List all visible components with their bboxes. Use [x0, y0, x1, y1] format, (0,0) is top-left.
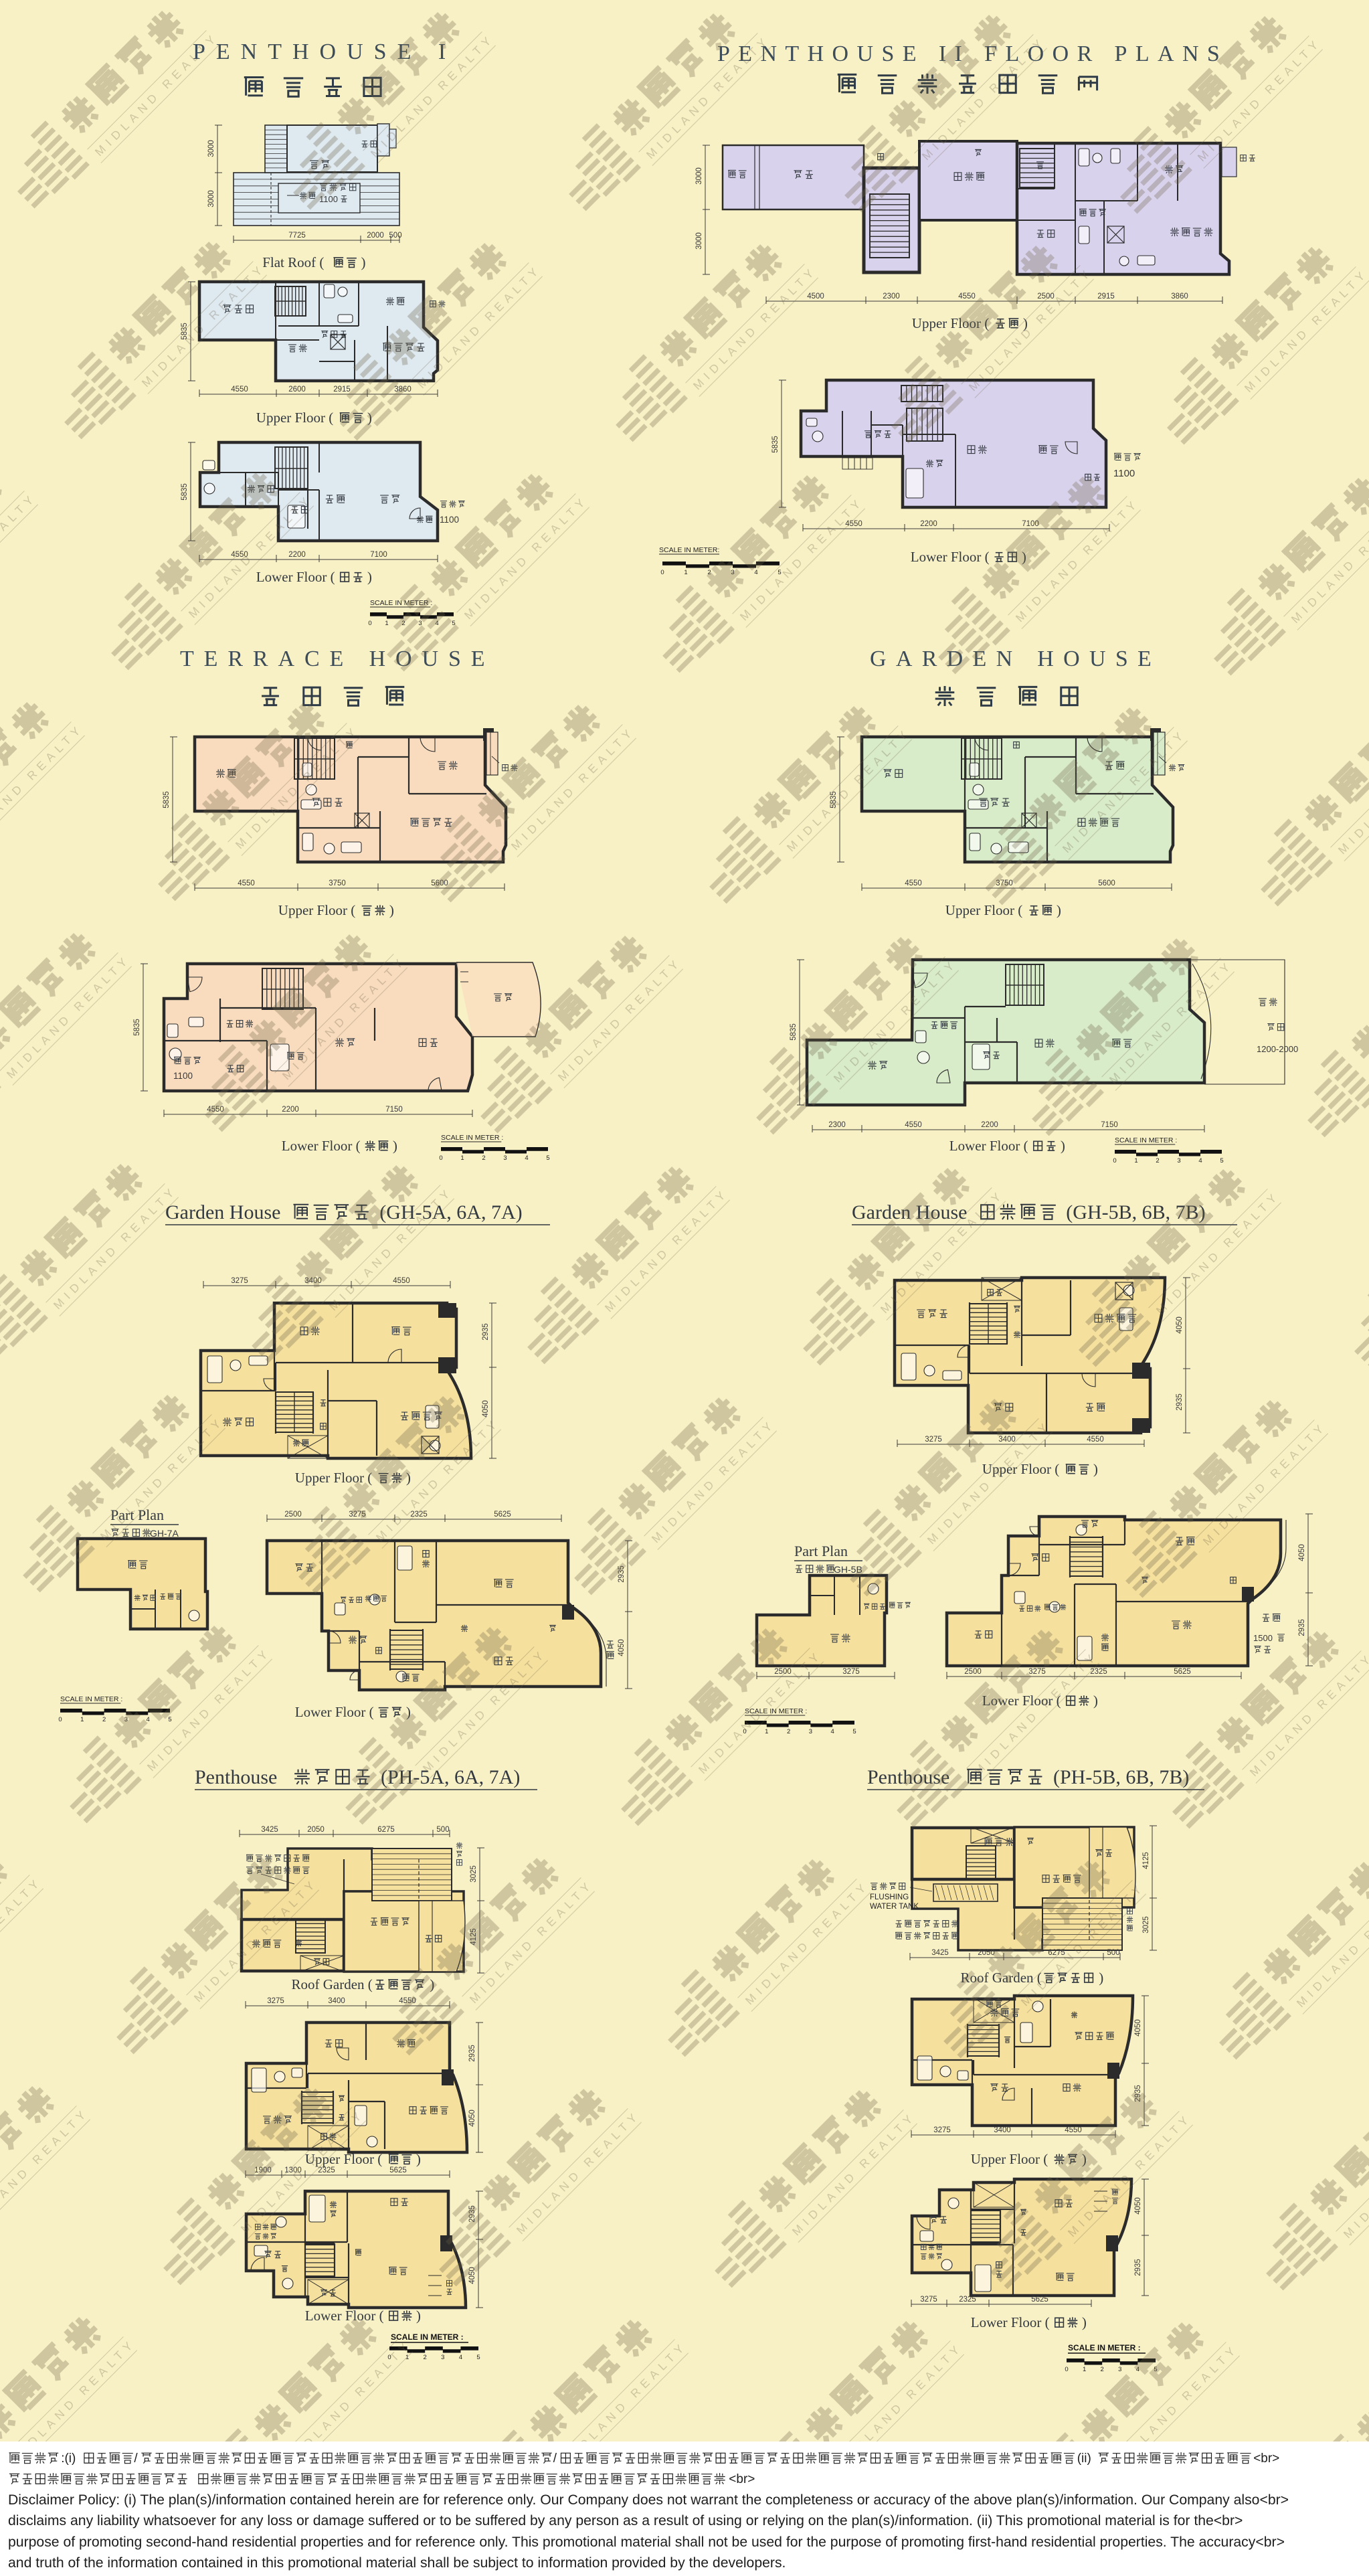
svg-text:1100: 1100	[173, 1071, 193, 1081]
svg-text::(i): :(i)	[61, 2452, 76, 2466]
svg-text:3000: 3000	[695, 232, 703, 250]
svg-text:4550: 4550	[1087, 1436, 1104, 1444]
svg-text:3275: 3275	[231, 1277, 248, 1285]
svg-text:0: 0	[439, 1154, 442, 1162]
svg-text:4: 4	[1198, 1157, 1202, 1165]
svg-text:2: 2	[424, 2354, 427, 2361]
svg-text:5: 5	[852, 1728, 856, 1735]
svg-text:5: 5	[1220, 1157, 1223, 1165]
svg-text:): )	[416, 2151, 421, 2167]
svg-text:Lower Floor (: Lower Floor (	[295, 1704, 374, 1720]
svg-text:2200: 2200	[282, 1106, 299, 1114]
svg-text:2200: 2200	[981, 1121, 998, 1129]
svg-text:2915: 2915	[333, 385, 351, 394]
svg-text:2: 2	[787, 1728, 790, 1735]
svg-text:<br>: <br>	[1253, 2452, 1279, 2466]
svg-text:5: 5	[168, 1716, 171, 1723]
svg-text:4125: 4125	[1142, 1852, 1150, 1869]
svg-text:4: 4	[831, 1728, 834, 1735]
svg-text:purpose of promoting second-ha: purpose of promoting second-hand residen…	[8, 2535, 1285, 2550]
svg-text:TERRACE HOUSE: TERRACE HOUSE	[180, 647, 494, 671]
svg-text:2935: 2935	[1176, 1393, 1184, 1411]
svg-text:SCALE IN METER:: SCALE IN METER:	[659, 546, 719, 554]
svg-text:5835: 5835	[771, 436, 780, 453]
svg-text:2000: 2000	[367, 232, 384, 240]
svg-text:4050: 4050	[1134, 2019, 1142, 2037]
svg-text:Upper Floor (: Upper Floor (	[278, 902, 355, 918]
svg-text:4: 4	[754, 569, 757, 576]
svg-text:4: 4	[459, 2354, 462, 2361]
svg-text:2200: 2200	[920, 520, 937, 528]
svg-text:1: 1	[405, 2354, 409, 2361]
svg-text:7150: 7150	[1101, 1121, 1118, 1129]
svg-text:Lower Floor (: Lower Floor (	[971, 2314, 1050, 2330]
svg-text:Upper Floor (: Upper Floor (	[971, 2151, 1048, 2167]
svg-text:0: 0	[660, 569, 664, 576]
svg-text:4050: 4050	[1298, 1544, 1306, 1561]
svg-text:2500: 2500	[964, 1668, 982, 1676]
svg-text:): )	[1093, 1693, 1098, 1709]
svg-text:1100: 1100	[1113, 468, 1135, 479]
svg-text:Lower Floor (: Lower Floor (	[949, 1138, 1028, 1154]
svg-text:4050: 4050	[1134, 2197, 1142, 2215]
svg-text:3: 3	[1177, 1157, 1180, 1165]
svg-text:and truth of the information c: and truth of the information contained i…	[8, 2555, 786, 2571]
svg-text:3275: 3275	[842, 1668, 860, 1676]
svg-text:3025: 3025	[1142, 1916, 1150, 1934]
svg-text:SCALE IN METER :: SCALE IN METER :	[60, 1695, 122, 1703]
svg-text:2300: 2300	[883, 292, 900, 300]
svg-text:3750: 3750	[329, 879, 346, 887]
svg-text:0: 0	[1065, 2366, 1068, 2373]
svg-text:2935: 2935	[468, 2045, 476, 2062]
svg-text:2: 2	[1156, 1157, 1159, 1165]
svg-text:): )	[1093, 1461, 1098, 1477]
svg-text:3400: 3400	[328, 1997, 345, 2005]
svg-text:5835: 5835	[133, 1019, 141, 1036]
svg-text:1: 1	[460, 1154, 464, 1162]
svg-text:/: /	[134, 2452, 138, 2466]
svg-text:2325: 2325	[959, 2296, 976, 2304]
svg-text:1: 1	[765, 1728, 768, 1735]
svg-text:): )	[367, 569, 372, 585]
svg-text:5835: 5835	[181, 483, 189, 501]
svg-text:Lower Floor (: Lower Floor (	[256, 569, 335, 585]
svg-text:5835: 5835	[790, 1023, 798, 1041]
svg-text:2: 2	[102, 1716, 106, 1723]
svg-text:SCALE IN METER :: SCALE IN METER :	[1115, 1136, 1177, 1144]
svg-text:7150: 7150	[385, 1106, 403, 1114]
svg-text:GARDEN HOUSE: GARDEN HOUSE	[870, 647, 1161, 671]
svg-text:4550: 4550	[905, 879, 922, 887]
svg-text:0: 0	[58, 1716, 62, 1723]
svg-text:7100: 7100	[370, 551, 387, 559]
svg-text:Disclaimer Policy: (i) The pla: Disclaimer Policy: (i) The plan(s)/infor…	[8, 2492, 1289, 2508]
svg-text:2050: 2050	[307, 1826, 325, 1834]
svg-text:3000: 3000	[207, 190, 215, 207]
svg-text:5: 5	[546, 1154, 549, 1162]
svg-text:2300: 2300	[828, 1121, 846, 1129]
svg-text:FLUSHING: FLUSHING	[870, 1893, 909, 1901]
svg-text:2: 2	[482, 1154, 485, 1162]
svg-text:4550: 4550	[958, 292, 976, 300]
svg-text:): )	[1099, 1970, 1103, 1986]
svg-text:GH-7A: GH-7A	[150, 1528, 179, 1539]
svg-text:1100: 1100	[440, 515, 459, 525]
svg-text:4550: 4550	[1065, 2126, 1082, 2134]
svg-text:4050: 4050	[468, 2110, 476, 2127]
svg-text:(ii): (ii)	[1077, 2452, 1091, 2466]
svg-text:Upper Floor (: Upper Floor (	[295, 1470, 372, 1486]
svg-text:/: /	[553, 2452, 557, 2466]
svg-text:3: 3	[503, 1154, 507, 1162]
svg-text:5835: 5835	[163, 791, 171, 808]
svg-text:WATER TANK: WATER TANK	[870, 1903, 919, 1911]
svg-text:500: 500	[389, 232, 401, 240]
svg-text:0: 0	[1113, 1157, 1116, 1165]
svg-text:2915: 2915	[1097, 292, 1115, 300]
svg-text:4550: 4550	[238, 879, 255, 887]
svg-text:<br>: <br>	[729, 2472, 755, 2486]
svg-text:Lower Floor (: Lower Floor (	[911, 549, 990, 565]
svg-text:): )	[393, 1138, 397, 1154]
svg-text:3000: 3000	[695, 167, 703, 185]
svg-text:4550: 4550	[905, 1121, 922, 1129]
svg-text:2325: 2325	[318, 2166, 335, 2174]
svg-text:500: 500	[1107, 1949, 1119, 1957]
svg-text:4050: 4050	[618, 1639, 626, 1656]
svg-text:5625: 5625	[494, 1511, 511, 1519]
svg-text:3: 3	[1118, 2366, 1121, 2373]
svg-text:3860: 3860	[1171, 292, 1188, 300]
svg-text:4550: 4550	[393, 1277, 410, 1285]
svg-text:2050: 2050	[978, 1949, 995, 1957]
svg-text:Upper Floor (: Upper Floor (	[945, 902, 1022, 918]
svg-text:3025: 3025	[470, 1865, 478, 1883]
svg-text:(PH-5B, 6B, 7B): (PH-5B, 6B, 7B)	[1053, 1766, 1189, 1788]
svg-text:SCALE IN METER :: SCALE IN METER :	[441, 1134, 503, 1142]
svg-text:3000: 3000	[207, 140, 215, 157]
svg-text:3275: 3275	[920, 2296, 937, 2304]
svg-text:1: 1	[385, 620, 388, 627]
svg-text:2600: 2600	[288, 385, 306, 394]
svg-text:3275: 3275	[1028, 1668, 1046, 1676]
svg-text:500: 500	[436, 1826, 449, 1834]
svg-text:3400: 3400	[994, 2126, 1011, 2134]
svg-text:5625: 5625	[1031, 2296, 1048, 2304]
svg-text:1200-2000: 1200-2000	[1257, 1044, 1298, 1054]
svg-text:4050: 4050	[1176, 1316, 1184, 1334]
svg-text:1: 1	[1083, 2366, 1086, 2373]
svg-text:0: 0	[368, 620, 371, 627]
svg-text:2: 2	[1101, 2366, 1104, 2373]
svg-text:PENTHOUSE I: PENTHOUSE I	[193, 39, 456, 64]
svg-text:5: 5	[476, 2354, 480, 2361]
svg-text:5625: 5625	[389, 2166, 407, 2174]
svg-text:3275: 3275	[925, 1436, 942, 1444]
svg-text:2500: 2500	[284, 1511, 302, 1519]
svg-text:1500: 1500	[1253, 1633, 1273, 1643]
svg-text:Part Plan: Part Plan	[794, 1543, 848, 1559]
svg-text:4: 4	[525, 1154, 528, 1162]
svg-text:SCALE IN METER :: SCALE IN METER :	[1068, 2343, 1141, 2352]
svg-text:Lower Floor (: Lower Floor (	[305, 2308, 384, 2324]
svg-text:): )	[389, 902, 394, 918]
svg-text:3275: 3275	[933, 2126, 951, 2134]
svg-text:5600: 5600	[1098, 879, 1115, 887]
svg-text:3275: 3275	[267, 1997, 284, 2005]
svg-text:disclaims any liability whatso: disclaims any liability whatsoever for a…	[8, 2513, 1243, 2528]
svg-text:Upper Floor (: Upper Floor (	[256, 410, 333, 426]
svg-text:3425: 3425	[931, 1949, 949, 1957]
svg-text:2935: 2935	[1298, 1619, 1306, 1636]
svg-text:1: 1	[684, 569, 687, 576]
svg-text:2200: 2200	[288, 551, 306, 559]
svg-text:): )	[416, 2308, 421, 2324]
svg-text:3425: 3425	[261, 1826, 278, 1834]
svg-text:6275: 6275	[377, 1826, 395, 1834]
svg-text:2935: 2935	[1134, 2259, 1142, 2276]
svg-text:4550: 4550	[231, 385, 248, 394]
svg-text:): )	[1061, 1138, 1065, 1154]
svg-text:(GH-5A, 6A, 7A): (GH-5A, 6A, 7A)	[379, 1201, 522, 1223]
svg-text:Garden House: Garden House	[165, 1201, 280, 1223]
svg-text:Lower Floor (: Lower Floor (	[282, 1138, 361, 1154]
svg-text:3400: 3400	[998, 1436, 1016, 1444]
svg-text:3: 3	[809, 1728, 812, 1735]
svg-text:Flat Roof (: Flat Roof (	[262, 254, 324, 270]
svg-text:4500: 4500	[807, 292, 824, 300]
svg-text:1: 1	[1134, 1157, 1137, 1165]
svg-text:): )	[361, 254, 366, 270]
svg-text:4050: 4050	[482, 1400, 490, 1418]
svg-text:7725: 7725	[288, 232, 306, 240]
svg-text:2935: 2935	[482, 1323, 490, 1341]
svg-text:Roof Garden (: Roof Garden (	[292, 1976, 373, 1992]
svg-text:Penthouse: Penthouse	[195, 1766, 277, 1788]
svg-text:3: 3	[441, 2354, 444, 2361]
svg-text:5625: 5625	[1174, 1668, 1191, 1676]
svg-text:): )	[1057, 902, 1061, 918]
svg-text:): )	[1082, 2314, 1087, 2330]
svg-text:1: 1	[80, 1716, 84, 1723]
